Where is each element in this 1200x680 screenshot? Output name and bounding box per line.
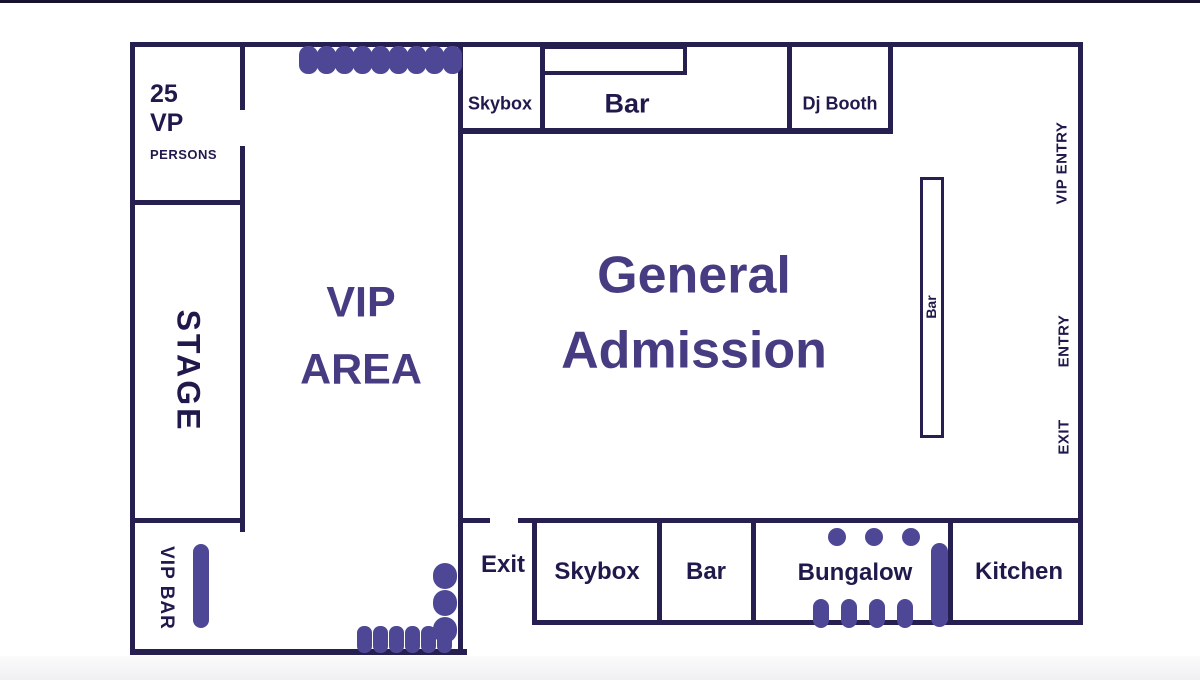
wall-skybox-bar-bottom-divider — [657, 518, 662, 625]
vip-top-seats — [299, 46, 461, 74]
screen-top-edge — [0, 0, 1200, 3]
seat-dot — [353, 46, 372, 74]
room-label-vp-room: 25 VP PERSONS — [150, 80, 217, 162]
wall-bar-bungalow-divider — [751, 518, 756, 625]
room-label-vip-area: VIP AREA — [300, 269, 422, 402]
page-bottom-strip — [0, 656, 1200, 680]
vip-corner-bottom-seats — [357, 626, 452, 653]
ga-line1: General — [561, 239, 827, 314]
vp-capacity: 25 — [150, 80, 217, 109]
wall-bar-djbooth-divider — [787, 47, 792, 133]
seat-dot — [433, 563, 457, 589]
seat-dot — [405, 626, 420, 653]
room-label-exit-corridor: Exit — [481, 551, 525, 579]
wall-left-column-upper — [240, 42, 245, 110]
seat-dot — [389, 46, 408, 74]
seat-dot — [425, 46, 444, 74]
wall-label-exit: EXIT — [1056, 419, 1073, 454]
wall-stage-bottom — [130, 518, 244, 523]
seat-dot — [813, 599, 829, 628]
seat-dot — [897, 599, 913, 628]
seat-dot — [317, 46, 336, 74]
seat-dot — [902, 528, 920, 546]
vip-area-line1: VIP — [300, 269, 422, 336]
seat-dot — [828, 528, 846, 546]
room-label-bar-bottom: Bar — [686, 558, 726, 586]
seat-dot — [443, 46, 462, 74]
seat-dot — [373, 626, 388, 653]
seat-dot — [869, 599, 885, 628]
top-bar-counter — [541, 45, 687, 75]
wall-djbooth-right — [888, 47, 893, 133]
wall-left-column-main — [240, 146, 245, 532]
wall-label-vip-entry: VIP ENTRY — [1054, 122, 1071, 205]
wall-bottom-rooms-bottom — [532, 620, 1083, 625]
wall-vp-room-bottom — [130, 200, 244, 205]
room-label-bungalow: Bungalow — [798, 559, 913, 587]
wall-label-entry: ENTRY — [1056, 315, 1073, 368]
bungalow-counter-pill — [931, 543, 948, 627]
room-label-stage: STAGE — [170, 310, 207, 433]
room-label-dj-booth: Dj Booth — [803, 94, 878, 115]
seat-dot — [389, 626, 404, 653]
label-ga-bar-counter: Bar — [923, 295, 939, 318]
room-label-vip-bar: VIP BAR — [155, 546, 177, 630]
room-label-skybox-bottom: Skybox — [554, 558, 639, 586]
seat-dot — [407, 46, 426, 74]
vp-line2: VP — [150, 109, 217, 138]
seat-dot — [841, 599, 857, 628]
wall-top-rooms-bottom — [458, 128, 893, 134]
vp-line3: PERSONS — [150, 147, 217, 162]
room-label-kitchen: Kitchen — [975, 558, 1063, 586]
bungalow-bottom-seats — [813, 599, 913, 628]
seat-dot — [421, 626, 436, 653]
room-label-skybox-top: Skybox — [468, 94, 532, 115]
seat-dot — [433, 590, 457, 616]
wall-exit-door-stub — [458, 518, 490, 523]
wall-bungalow-kitchen-divider — [948, 518, 953, 625]
wall-right — [1078, 42, 1083, 625]
seat-dot — [299, 46, 318, 74]
ga-line2: Admission — [561, 314, 827, 389]
seat-dot — [865, 528, 883, 546]
bungalow-top-seats — [828, 528, 920, 546]
seat-dot — [335, 46, 354, 74]
venue-floor-plan: 25 VP PERSONS STAGE VIP BAR VIP AREA Gen… — [0, 0, 1200, 680]
seat-dot — [437, 626, 452, 653]
room-label-bar-top: Bar — [604, 89, 649, 120]
room-label-general-admission: General Admission — [561, 239, 827, 390]
vip-bar-counter-pill — [193, 544, 209, 628]
seat-dot — [371, 46, 390, 74]
seat-dot — [357, 626, 372, 653]
wall-left — [130, 42, 135, 655]
wall-bottom-rooms-top — [518, 518, 1083, 523]
vip-area-line2: AREA — [300, 336, 422, 403]
wall-skybox-bottom-left — [532, 518, 537, 625]
